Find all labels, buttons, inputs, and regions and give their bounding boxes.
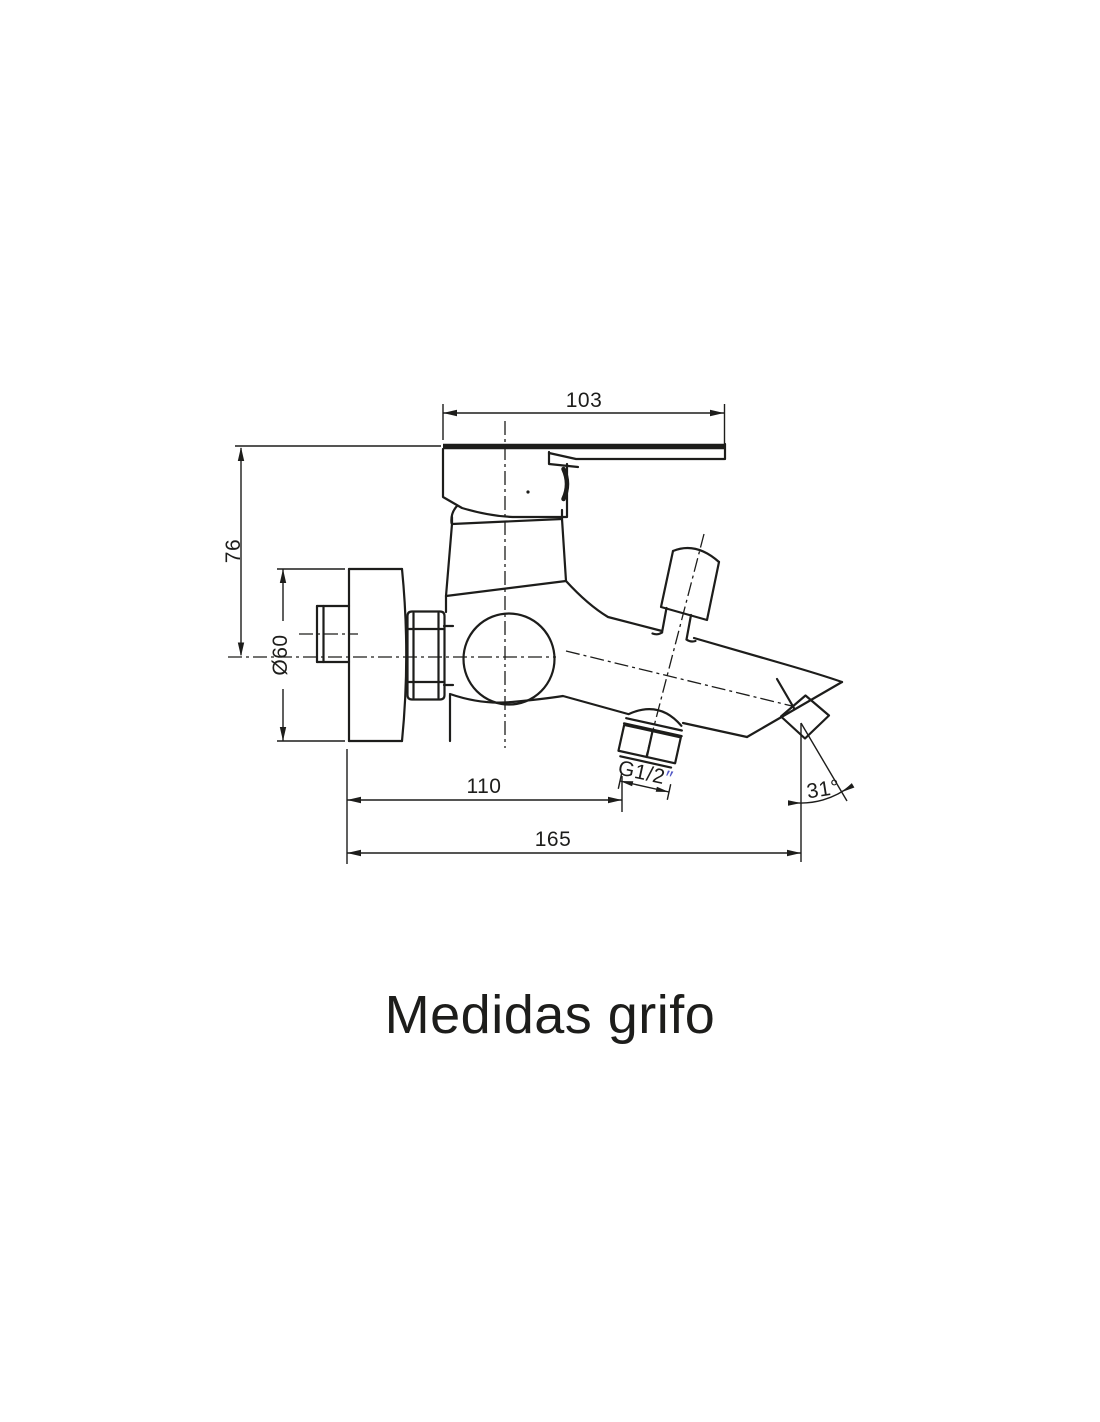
faucet-dimension-drawing: 103 76 Ø60 110 [0, 0, 1100, 1422]
dimension-total-length: 165 [347, 828, 801, 856]
dim-label-103: 103 [566, 389, 603, 412]
dimension-thread: G1/2″ [616, 756, 675, 799]
wall-flange [349, 569, 406, 741]
dimension-spout-angle: 31° [788, 723, 854, 862]
diverter-knob [653, 548, 720, 642]
dimension-handle-width: 103 [443, 389, 725, 446]
faucet-outline [317, 444, 842, 768]
dim-label-31deg: 31° [805, 776, 841, 804]
spout-aerator [777, 679, 829, 739]
dimension-flange-diameter: Ø60 [269, 569, 345, 741]
spout-axis [566, 651, 792, 706]
technical-drawing-page: 103 76 Ø60 110 [0, 0, 1100, 1422]
drawing-title: Medidas grifo [0, 984, 1100, 1046]
dim-label-76: 76 [222, 539, 245, 563]
dimension-wall-to-outlet: 110 [347, 749, 622, 864]
dim-label-110: 110 [467, 775, 502, 798]
diverter-axis [646, 534, 704, 757]
hex-nut [408, 612, 445, 700]
dim-label-d60: Ø60 [269, 634, 292, 675]
valve-circle [464, 614, 555, 705]
cartridge-cone [446, 510, 566, 596]
dim-label-165: 165 [535, 828, 572, 851]
